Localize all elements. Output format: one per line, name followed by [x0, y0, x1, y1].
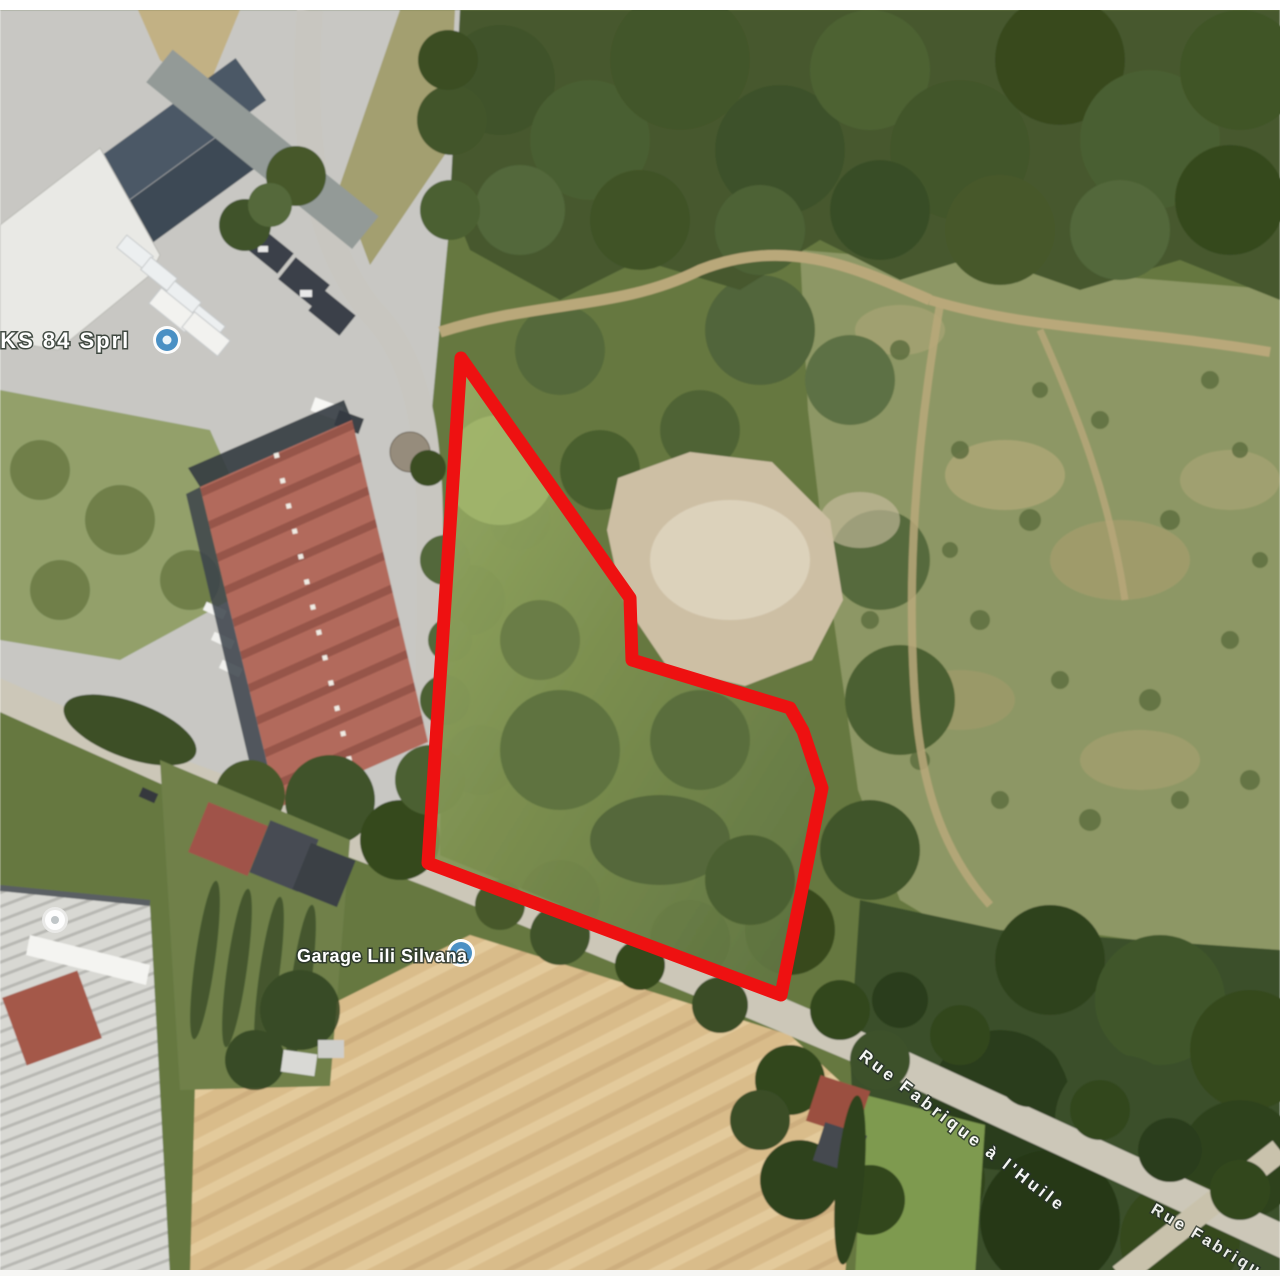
- pin-dot-icon: [51, 916, 59, 924]
- shed-2: [318, 1040, 344, 1058]
- white-warehouse: [0, 888, 170, 1276]
- poi-pin-white[interactable]: [42, 907, 68, 933]
- poi-pin-partial[interactable]: [153, 326, 181, 354]
- satellite-map-canvas[interactable]: 2KS 84 Sprl Garage Lili Silvana Rue Fabr…: [0, 0, 1280, 1276]
- bottom-margin: [0, 1270, 1280, 1276]
- pin-dot-icon: [163, 336, 172, 345]
- top-margin: [0, 0, 1280, 10]
- screenshot-stage: 2KS 84 Sprl Garage Lili Silvana Rue Fabr…: [0, 0, 1280, 1276]
- poi-label-partial[interactable]: 2KS 84 Sprl: [0, 328, 130, 353]
- poi-label-garage[interactable]: Garage Lili Silvana: [297, 946, 468, 966]
- terrain-layer: [0, 0, 1280, 1276]
- shed-1: [281, 1050, 318, 1077]
